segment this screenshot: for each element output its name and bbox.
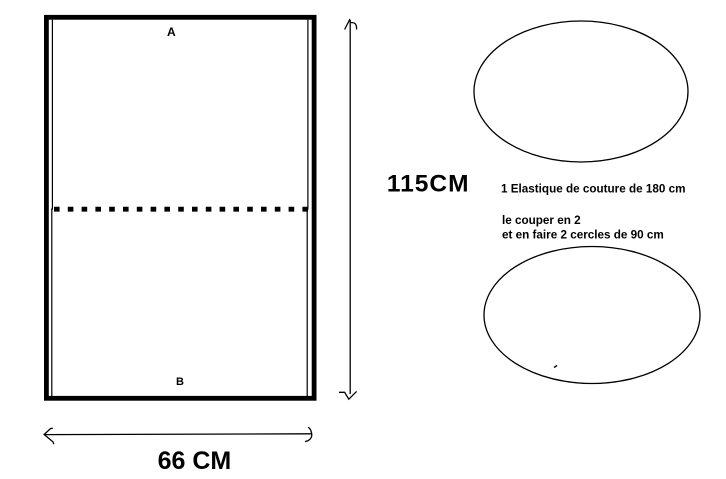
svg-text:B: B [176, 376, 184, 388]
svg-text:A: A [167, 25, 176, 39]
svg-text:1 Elastique de couture de 180: 1 Elastique de couture de 180 cm [501, 183, 685, 196]
svg-text:le couper en 2: le couper en 2 [502, 214, 581, 227]
svg-text:115CM: 115CM [387, 170, 470, 197]
svg-text:et en faire 2 cercles de 90 cm: et en faire 2 cercles de 90 cm [502, 229, 664, 242]
svg-text:66 CM: 66 CM [158, 447, 232, 475]
